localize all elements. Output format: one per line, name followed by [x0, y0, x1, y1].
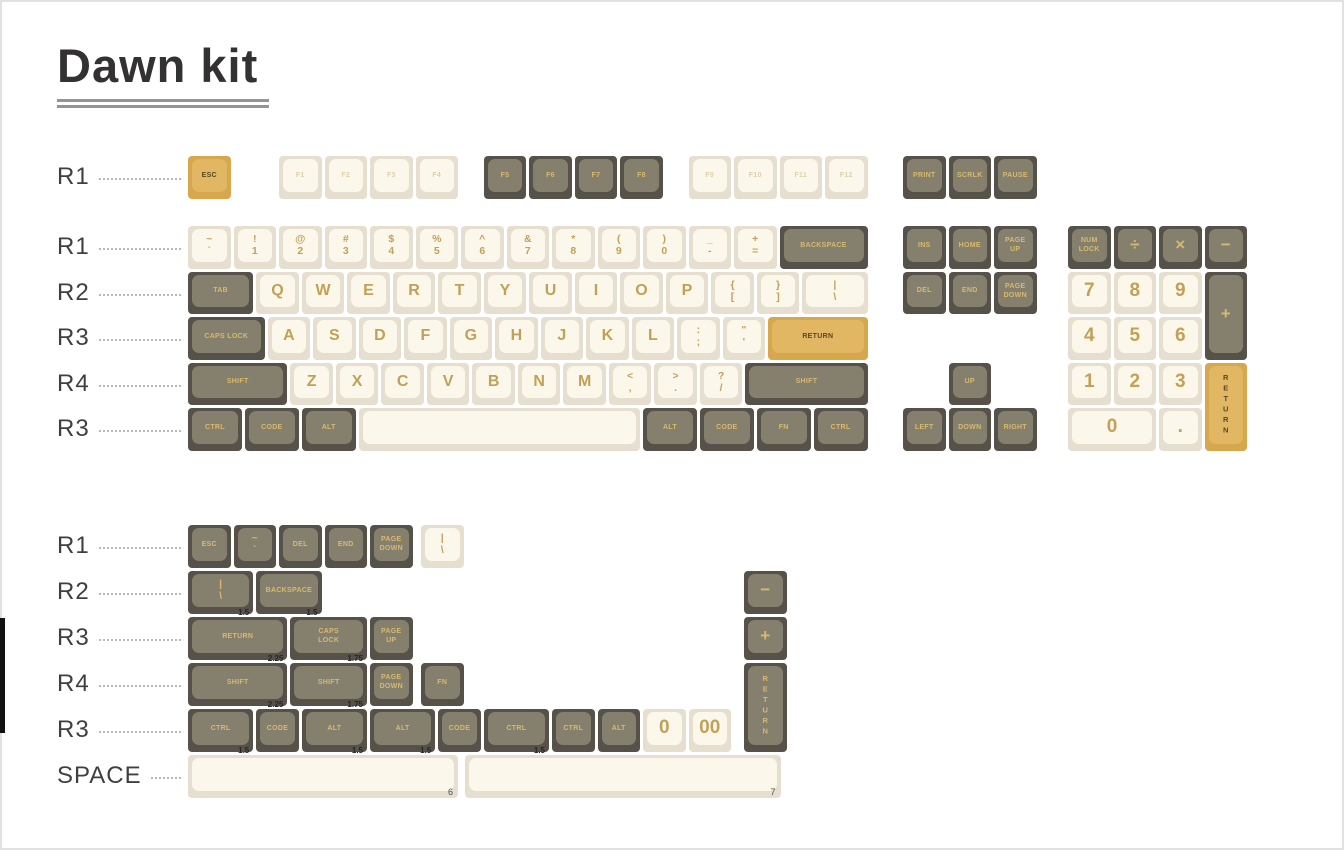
- keycap-return: RETURN2.25: [188, 617, 287, 660]
- keycap-top: LEFT: [907, 411, 942, 444]
- keycap-legend: )0: [661, 233, 667, 257]
- keycap-00: 00: [689, 709, 732, 752]
- leader-dots: [99, 339, 181, 341]
- row-label-text: SPACE: [57, 762, 142, 790]
- key-size-label: 7: [770, 787, 775, 797]
- keycap-legend: 6: [1175, 325, 1186, 347]
- keycap-top: SHIFT: [192, 366, 283, 399]
- keycap-esc: ESC: [188, 156, 231, 199]
- keycap-top: RETURN: [748, 666, 783, 745]
- keycap-legend: INS: [918, 241, 931, 250]
- keycap-9: (9: [598, 226, 641, 269]
- page-edge-mark: [0, 618, 5, 733]
- keycap-top: PAGEDOWN: [374, 666, 409, 699]
- keycap-legend: F9: [705, 171, 714, 180]
- row-label-r3: R3: [57, 715, 181, 745]
- keycap-legend: Q: [271, 282, 283, 300]
- row-label-r3: R3: [57, 414, 181, 444]
- keycap-top: SHIFT: [749, 366, 863, 399]
- keycap-legend: .: [1178, 416, 1183, 438]
- keycap-legend: >.: [673, 370, 679, 394]
- keycap-legend: PAGEDOWN: [380, 535, 403, 553]
- keycap-blank: +=: [734, 226, 777, 269]
- key-size-label: 2.25: [268, 700, 284, 709]
- keycap-legend: CAPSLOCK: [318, 627, 339, 645]
- keycap-9: 9: [1159, 272, 1202, 315]
- keycap-shift: SHIFT2.25: [188, 663, 287, 706]
- keycap-z: Z: [290, 363, 333, 406]
- keycap-top: #3: [329, 229, 364, 262]
- keycap-legend: O: [635, 282, 647, 300]
- keycap-top: BACKSPACE: [260, 574, 317, 607]
- kit-title: Dawn kit: [57, 38, 258, 93]
- keycap-legend: J: [557, 327, 566, 345]
- keycap-legend: W: [315, 282, 330, 300]
- keycap-blank: _-: [689, 226, 732, 269]
- keycap-spacebar: 7: [465, 755, 781, 798]
- keycap-kit-poster: Dawn kit R1R1R2R3R4R3R1R2R3R4R3SPACE ESC…: [0, 0, 1344, 850]
- keycap-legend: V: [443, 373, 454, 391]
- row-label-text: R1: [57, 233, 90, 261]
- keycap-top: (9: [602, 229, 637, 262]
- keycap-top: Z: [294, 366, 329, 399]
- keycap-0: 0: [643, 709, 686, 752]
- keycap-top: 7: [1072, 275, 1107, 308]
- keycap-ctrl: CTRL: [188, 408, 242, 451]
- keycap-blank: <,: [609, 363, 652, 406]
- keycap-legend: SCRLK: [957, 171, 983, 180]
- keycap-top: Q: [260, 275, 295, 308]
- keycap-legend: END: [338, 540, 354, 549]
- keycap-top: 5: [1118, 320, 1153, 353]
- keycap-top: ~`: [192, 229, 227, 262]
- keycap-top: %5: [420, 229, 455, 262]
- keycap-top: {[: [715, 275, 750, 308]
- keycap-legend: S: [329, 327, 340, 345]
- keycap-legend: $4: [388, 233, 394, 257]
- keycap-y: Y: [484, 272, 527, 315]
- keycap-f6: F6: [529, 156, 572, 199]
- keycap-blank: .: [1159, 408, 1202, 451]
- keycap-legend: I: [594, 282, 598, 300]
- keycap-5: 5: [1114, 317, 1157, 360]
- keycap-top: +: [1209, 275, 1244, 353]
- keycap-top: [469, 758, 777, 791]
- keycap-print: PRINT: [903, 156, 946, 199]
- key-size-label: 6: [448, 787, 453, 797]
- keycap-top: F12: [829, 159, 864, 192]
- keycap-0: )0: [643, 226, 686, 269]
- keycap-legend: {[: [730, 279, 734, 303]
- leader-dots: [99, 248, 181, 250]
- keycap-legend: F12: [840, 171, 853, 180]
- keycap-legend: ALT: [396, 724, 410, 733]
- keycap-ctrl: CTRL1.5: [188, 709, 253, 752]
- keycap-top: ^6: [465, 229, 500, 262]
- keycap-ctrl: CTRL: [814, 408, 868, 451]
- keycap-top: ×: [1163, 229, 1198, 262]
- keycap-return: RETURN: [744, 663, 787, 752]
- keycap-top: *8: [556, 229, 591, 262]
- keycap-top: Y: [488, 275, 523, 308]
- row-label-r1: R1: [57, 232, 181, 262]
- keycap-top: F5: [488, 159, 523, 192]
- keycap-f7: F7: [575, 156, 618, 199]
- keycap-a: A: [268, 317, 311, 360]
- keycap-top: C: [385, 366, 420, 399]
- keycap-top: PAGEDOWN: [374, 528, 409, 561]
- keycap-legend: F4: [432, 171, 441, 180]
- keycap-1: 1: [1068, 363, 1111, 406]
- keycap-legend: R: [408, 282, 420, 300]
- keycap-legend: 3: [1175, 371, 1186, 393]
- keycap-top: CAPS LOCK: [192, 320, 261, 353]
- keycap-legend: 0: [1107, 416, 1118, 438]
- keycap-top: PAGEUP: [998, 229, 1033, 262]
- keycap-top: NUMLOCK: [1072, 229, 1107, 262]
- keycap-legend: ESC: [202, 540, 217, 549]
- keycap-top: _-: [693, 229, 728, 262]
- keycap-g: G: [450, 317, 493, 360]
- keycap-d: D: [359, 317, 402, 360]
- keycap-legend: T: [455, 282, 465, 300]
- keycap-top: INS: [907, 229, 942, 262]
- keycap-up: UP: [949, 363, 992, 406]
- keycap-legend: L: [648, 327, 658, 345]
- keycap-legend: −: [1221, 235, 1231, 255]
- keycap-legend: CTRL: [211, 724, 231, 733]
- keycap-top: CODE: [442, 712, 477, 745]
- row-label-text: R4: [57, 670, 90, 698]
- keycap-top: F1: [283, 159, 318, 192]
- keycap-top: CODE: [249, 411, 295, 444]
- keycap-f3: F3: [370, 156, 413, 199]
- keycap-top: PAGEUP: [374, 620, 409, 653]
- keycap-top: DEL: [907, 275, 942, 308]
- keycap-top: F10: [738, 159, 773, 192]
- keycap-legend: END: [962, 286, 978, 295]
- keycap-legend: B: [488, 373, 500, 391]
- keycap-top: RETURN: [1209, 366, 1244, 444]
- keycap-top: SHIFT: [294, 666, 363, 699]
- keycap-blank: +: [744, 617, 787, 660]
- keycap-2: 2: [1114, 363, 1157, 406]
- leader-dots: [99, 593, 181, 595]
- keycap-legend: F1: [296, 171, 305, 180]
- keycap-top: CAPSLOCK: [294, 620, 363, 653]
- keycap-legend: _-: [707, 233, 713, 257]
- keycap-legend: +: [1221, 304, 1231, 324]
- keycap-top: ALT: [602, 712, 637, 745]
- keycap-legend: PAGEUP: [1005, 236, 1026, 254]
- keycap-top: B: [476, 366, 511, 399]
- keycap-top: PAGEDOWN: [998, 275, 1033, 308]
- keycap-top: DEL: [283, 528, 318, 561]
- keycap-top: F6: [533, 159, 568, 192]
- keycap-top: $4: [374, 229, 409, 262]
- keycap-legend: E: [363, 282, 374, 300]
- keycap-legend: 0: [659, 717, 670, 739]
- keycap-legend: CODE: [449, 724, 470, 733]
- keycap-top: X: [340, 366, 375, 399]
- keycap-k: K: [586, 317, 629, 360]
- keycap-3: #3: [325, 226, 368, 269]
- keycap-top: RIGHT: [998, 411, 1033, 444]
- keycap-m: M: [563, 363, 606, 406]
- keycap-f4: F4: [416, 156, 459, 199]
- row-label-text: R3: [57, 324, 90, 352]
- keycap-blank: ~`: [188, 226, 231, 269]
- keycap-top: CTRL: [556, 712, 591, 745]
- keycap-o: O: [620, 272, 663, 315]
- keycap-legend: 9: [1175, 280, 1186, 302]
- keycap-legend: F5: [501, 171, 510, 180]
- keycap-legend: SHIFT: [318, 678, 340, 687]
- row-label-r3: R3: [57, 323, 181, 353]
- keycap-legend: F8: [637, 171, 646, 180]
- keycap-p: P: [666, 272, 709, 315]
- keycap-down: DOWN: [949, 408, 992, 451]
- keycap-top: O: [624, 275, 659, 308]
- keycap-page-down: PAGEDOWN: [370, 663, 413, 706]
- row-label-r3: R3: [57, 623, 181, 653]
- leader-dots: [99, 639, 181, 641]
- keycap-legend: H: [511, 327, 523, 345]
- row-label-text: R2: [57, 279, 90, 307]
- keycap-legend: SHIFT: [227, 678, 249, 687]
- keycap-top: N: [522, 366, 557, 399]
- keycap-top: H: [499, 320, 534, 353]
- keycap-legend: K: [602, 327, 614, 345]
- keycap-legend: RETURN: [222, 632, 253, 641]
- keycap-legend: ×: [1175, 235, 1185, 255]
- keycap-top: +=: [738, 229, 773, 262]
- keycap-blank: |\1.5: [188, 571, 253, 614]
- keycap-top: CODE: [260, 712, 295, 745]
- keycap-blank: {[: [711, 272, 754, 315]
- keycap-legend: @2: [295, 233, 305, 257]
- keycap-top: ALT: [306, 411, 352, 444]
- keycap-blank: ~`: [234, 525, 277, 568]
- keycap-shift: SHIFT: [745, 363, 867, 406]
- keycap-legend: ALT: [663, 423, 677, 432]
- keycap-top: 1: [1072, 366, 1107, 399]
- keycap-pause: PAUSE: [994, 156, 1037, 199]
- keycap-fn: FN: [421, 663, 464, 706]
- keycap-legend: TAB: [213, 286, 228, 295]
- keycap-top: HOME: [953, 229, 988, 262]
- keycap-top: PRINT: [907, 159, 942, 192]
- keycap-top: CTRL: [488, 712, 545, 745]
- keycap-blank: >.: [654, 363, 697, 406]
- keycap-legend: Z: [307, 373, 317, 391]
- keycap-top: F8: [624, 159, 659, 192]
- keycap-code: CODE: [700, 408, 754, 451]
- keycap-top: 00: [693, 712, 728, 745]
- keycap-legend: RETURN: [761, 674, 770, 737]
- keycap-top: END: [953, 275, 988, 308]
- keycap-top: PAUSE: [998, 159, 1033, 192]
- keycap-legend: −: [760, 580, 770, 600]
- keycap-legend: F7: [592, 171, 601, 180]
- keycap-left: LEFT: [903, 408, 946, 451]
- keycap-legend: #3: [343, 233, 349, 257]
- keycap-legend: +: [760, 626, 770, 646]
- keycap-4: $4: [370, 226, 413, 269]
- keycap-legend: N: [533, 373, 545, 391]
- keycap-legend: 5: [1129, 325, 1140, 347]
- keycap-top: |\: [806, 275, 863, 308]
- keycap-w: W: [302, 272, 345, 315]
- keycap-legend: ALT: [327, 724, 341, 733]
- keycap-alt: ALT: [598, 709, 641, 752]
- keycap-legend: UP: [965, 377, 975, 386]
- keycap-top: A: [272, 320, 307, 353]
- keycap-legend: PAGEDOWN: [1004, 282, 1027, 300]
- keycap-top: R: [397, 275, 432, 308]
- keycap-legend: FN: [437, 678, 447, 687]
- row-label-text: R1: [57, 163, 90, 191]
- keycap-legend: SHIFT: [227, 377, 249, 386]
- keycap-top: !1: [238, 229, 273, 262]
- keycap-top: |\: [425, 528, 460, 561]
- keycap-legend: ESC: [202, 171, 217, 180]
- keycap-alt: ALT: [643, 408, 697, 451]
- keycap-blank: ÷: [1114, 226, 1157, 269]
- keycap-ins: INS: [903, 226, 946, 269]
- keycap-right: RIGHT: [994, 408, 1037, 451]
- keycap-8: 8: [1114, 272, 1157, 315]
- keycap-top: G: [454, 320, 489, 353]
- title-underline: [57, 99, 269, 108]
- keycap-legend: ALT: [322, 423, 336, 432]
- keycap-legend: CTRL: [563, 724, 583, 733]
- keycap-blank: +: [1205, 272, 1248, 360]
- keycap-legend: "': [741, 324, 746, 348]
- keycap-top: V: [431, 366, 466, 399]
- row-label-text: R3: [57, 716, 90, 744]
- keycap-4: 4: [1068, 317, 1111, 360]
- keycap-legend: Y: [500, 282, 511, 300]
- keycap-top: SCRLK: [953, 159, 988, 192]
- keycap-top: ~`: [238, 528, 273, 561]
- keycap-top: UP: [953, 366, 988, 399]
- keycap-legend: 00: [699, 717, 720, 739]
- keycap-1: !1: [234, 226, 277, 269]
- keycap-top: )0: [647, 229, 682, 262]
- keycap-top: 6: [1163, 320, 1198, 353]
- leader-dots: [99, 547, 181, 549]
- keycap-top: RETURN: [192, 620, 283, 653]
- keycap-legend: PAGEUP: [381, 627, 402, 645]
- row-label-text: R3: [57, 624, 90, 652]
- keycap-legend: RETURN: [802, 332, 833, 341]
- keycap-j: J: [541, 317, 584, 360]
- keycap-top: K: [590, 320, 625, 353]
- keycap-top: D: [363, 320, 398, 353]
- keycap-legend: ÷: [1130, 235, 1139, 255]
- keycap-alt: ALT1.5: [302, 709, 367, 752]
- keycap-legend: HOME: [959, 241, 981, 250]
- keycap-legend: SHIFT: [796, 377, 818, 386]
- row-label-space: SPACE: [57, 761, 181, 791]
- keycap-3: 3: [1159, 363, 1202, 406]
- keycap-legend: 4: [1084, 325, 1095, 347]
- keycap-top: CTRL: [192, 411, 238, 444]
- key-size-label: 1.75: [347, 654, 363, 663]
- keycap-num-lock: NUMLOCK: [1068, 226, 1111, 269]
- keycap-top: DOWN: [953, 411, 988, 444]
- keycap-blank: −: [1205, 226, 1248, 269]
- keycap-alt: ALT1.5: [370, 709, 435, 752]
- keycap-x: X: [336, 363, 379, 406]
- keycap-top: −: [1209, 229, 1244, 262]
- keycap-legend: BACKSPACE: [800, 241, 847, 250]
- keycap-page-down: PAGEDOWN: [994, 272, 1037, 315]
- leader-dots: [99, 430, 181, 432]
- keycap-code: CODE: [438, 709, 481, 752]
- keycap-top: +: [748, 620, 783, 653]
- keycap-legend: DOWN: [958, 423, 981, 432]
- keycap-top: :;: [681, 320, 716, 353]
- keycap-legend: ~`: [252, 532, 258, 556]
- keycap-top: L: [636, 320, 671, 353]
- keycap-top: CODE: [704, 411, 750, 444]
- keycap-top: ALT: [647, 411, 693, 444]
- keycap-legend: CAPS LOCK: [204, 332, 248, 341]
- keycap-top: 9: [1163, 275, 1198, 308]
- keycap-top: F3: [374, 159, 409, 192]
- keycap-legend: <,: [627, 370, 633, 394]
- keycap-f1: F1: [279, 156, 322, 199]
- keycap-legend: ALT: [612, 724, 626, 733]
- keycap-top: I: [579, 275, 614, 308]
- keycap-blank: ?/: [700, 363, 743, 406]
- keycap-legend: F11: [794, 171, 807, 180]
- keycap-top: FN: [761, 411, 807, 444]
- keycap-legend: 2: [1129, 371, 1140, 393]
- leader-dots: [99, 731, 181, 733]
- row-label-text: R4: [57, 370, 90, 398]
- key-size-label: 2.25: [268, 654, 284, 663]
- keycap-page-down: PAGEDOWN: [370, 525, 413, 568]
- keycap-legend: F10: [749, 171, 762, 180]
- keycap-blank: −: [744, 571, 787, 614]
- row-label-r4: R4: [57, 669, 181, 699]
- leader-dots: [99, 178, 181, 180]
- keycap-i: I: [575, 272, 618, 315]
- keycap-legend: BACKSPACE: [266, 586, 313, 595]
- keycap-top: 0: [647, 712, 682, 745]
- keycap-legend: F6: [546, 171, 555, 180]
- keycap-legend: F3: [387, 171, 396, 180]
- keycap-top: −: [748, 574, 783, 607]
- keycap-legend: U: [545, 282, 557, 300]
- keycap-legend: PRINT: [913, 171, 936, 180]
- keycap-legend: DEL: [293, 540, 308, 549]
- keycap-top: 3: [1163, 366, 1198, 399]
- keycap-top: 2: [1118, 366, 1153, 399]
- leader-dots: [99, 685, 181, 687]
- keycap-caps-lock: CAPS LOCK: [188, 317, 265, 360]
- keycap-f2: F2: [325, 156, 368, 199]
- keycap-top: [192, 758, 454, 791]
- key-size-label: 1.5: [238, 746, 249, 755]
- row-label-text: R1: [57, 532, 90, 560]
- keycap-q: Q: [256, 272, 299, 315]
- key-size-label: 1.5: [352, 746, 363, 755]
- keycap-ctrl: CTRL1.5: [484, 709, 549, 752]
